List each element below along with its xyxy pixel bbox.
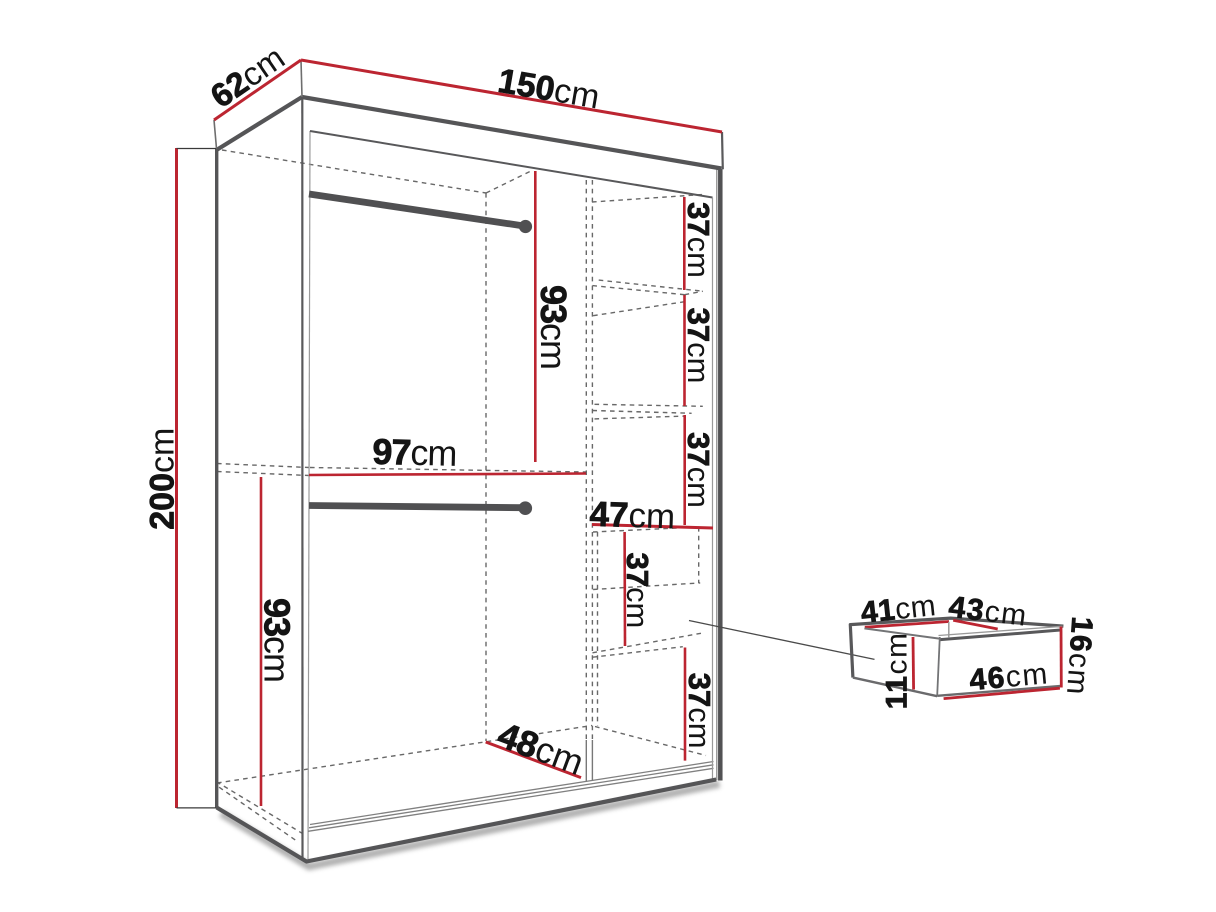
svg-text:93cm: 93cm — [257, 598, 298, 682]
svg-text:97cm: 97cm — [372, 431, 457, 474]
svg-text:37cm: 37cm — [620, 552, 655, 628]
svg-text:46cm: 46cm — [968, 657, 1050, 697]
svg-text:200cm: 200cm — [143, 428, 181, 530]
svg-text:93cm: 93cm — [533, 285, 574, 369]
svg-text:11cm: 11cm — [881, 632, 914, 710]
svg-text:47cm: 47cm — [589, 495, 676, 537]
svg-text:37cm: 37cm — [681, 308, 716, 384]
svg-text:37cm: 37cm — [681, 432, 716, 508]
svg-text:37cm: 37cm — [681, 202, 716, 278]
svg-text:16cm: 16cm — [1060, 616, 1098, 697]
svg-text:37cm: 37cm — [682, 673, 717, 749]
